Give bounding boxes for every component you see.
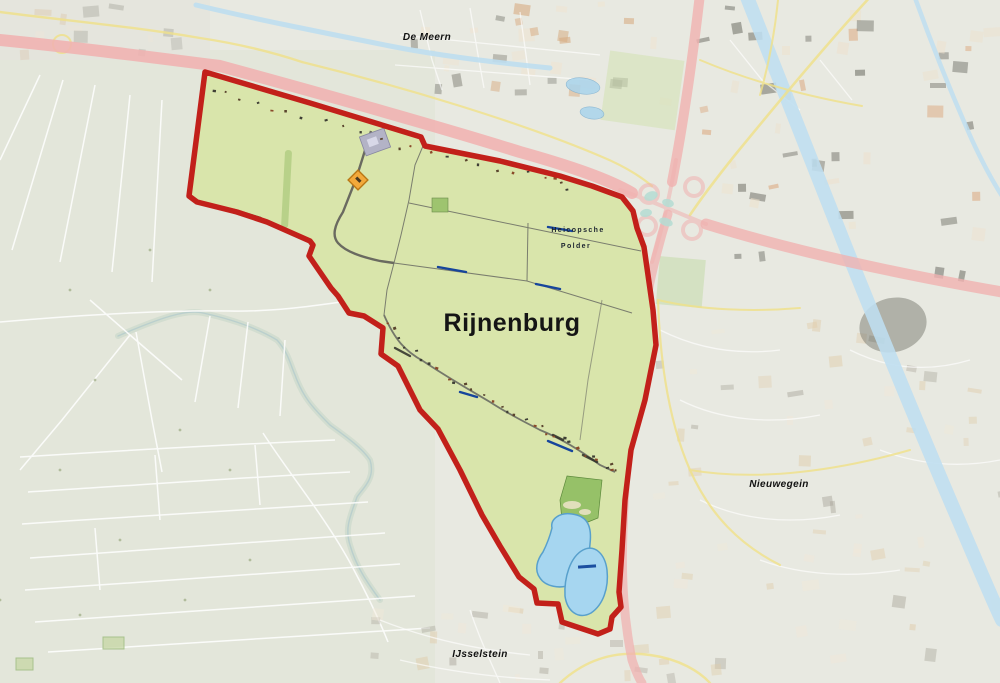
house-mark <box>452 382 455 385</box>
building-block <box>554 648 564 661</box>
house-mark <box>492 400 495 403</box>
building-block <box>969 30 983 43</box>
building-block <box>983 27 1000 37</box>
building-block <box>731 22 743 35</box>
building-block <box>855 514 862 519</box>
house-mark <box>359 131 361 133</box>
field-green-patch <box>432 198 448 212</box>
map-graphic <box>103 637 124 649</box>
building-block <box>857 20 874 31</box>
label-heicopsche-line2: Polder <box>561 243 591 250</box>
building-block <box>721 385 734 391</box>
label-heicopsche-line1: Heicopsche <box>551 227 604 234</box>
building-block <box>905 567 920 572</box>
building-block <box>370 652 378 659</box>
map-graphic <box>94 379 97 382</box>
building-block <box>610 640 623 647</box>
house-mark <box>595 458 598 461</box>
map-graphic <box>59 469 62 472</box>
building-block <box>824 400 833 410</box>
building-block <box>927 105 943 117</box>
label-nieuwegein: Nieuwegein <box>749 479 809 490</box>
map-graphic <box>69 289 72 292</box>
house-mark <box>512 414 515 417</box>
house-mark <box>563 437 566 440</box>
building-block <box>758 376 772 389</box>
building-block <box>923 371 937 382</box>
house-mark <box>614 469 616 471</box>
building-block <box>539 667 548 674</box>
building-block <box>511 50 525 61</box>
building-block <box>766 583 774 590</box>
building-block <box>522 624 531 634</box>
map-graphic <box>16 658 33 670</box>
house-mark <box>284 110 287 113</box>
building-block <box>782 46 790 55</box>
building-block <box>972 192 980 201</box>
house-mark <box>446 156 449 158</box>
map-graphic <box>229 469 232 472</box>
label-ijsselstein: IJsselstein <box>452 649 508 660</box>
house-mark <box>270 110 273 112</box>
building-block <box>624 670 630 681</box>
building-block <box>702 129 711 135</box>
building-block <box>963 438 968 446</box>
building-block <box>849 222 856 229</box>
building-block <box>515 89 527 95</box>
building-block <box>530 27 539 36</box>
building-block <box>556 6 568 13</box>
house-mark <box>213 90 217 93</box>
building-block <box>34 9 51 16</box>
building-block <box>969 417 977 424</box>
building-block <box>849 29 858 41</box>
building-block <box>441 613 453 619</box>
map-graphic <box>184 599 187 602</box>
house-mark <box>477 163 479 166</box>
house-mark <box>428 362 431 365</box>
building-block <box>681 573 693 580</box>
building-block <box>372 608 385 621</box>
building-block <box>711 664 722 676</box>
map-graphic <box>209 289 212 292</box>
topographic-map: De Meern Heicopsche Polder Rijnenburg Ni… <box>0 0 1000 683</box>
label-rijnenburg: Rijnenburg <box>444 309 581 337</box>
building-block <box>909 624 916 631</box>
building-block <box>831 152 839 161</box>
house-mark <box>420 359 423 362</box>
building-block <box>924 648 937 662</box>
building-block <box>919 381 925 390</box>
building-block <box>673 579 688 589</box>
house-mark <box>545 433 547 435</box>
house-mark <box>533 425 536 427</box>
building-block <box>787 416 793 425</box>
building-block <box>930 83 946 88</box>
building-block <box>650 37 657 49</box>
building-block <box>952 61 968 73</box>
house-mark <box>592 455 595 457</box>
building-block <box>799 455 811 466</box>
building-block <box>690 369 697 374</box>
building-block <box>148 35 154 42</box>
building-block <box>171 37 183 50</box>
building-block <box>812 319 821 332</box>
building-block <box>624 18 634 24</box>
building-block <box>83 5 100 17</box>
map-graphic <box>600 50 684 130</box>
house-mark <box>506 411 508 414</box>
building-block <box>971 227 985 241</box>
house-mark <box>541 425 543 427</box>
building-block <box>721 183 733 194</box>
building-block <box>734 254 741 259</box>
building-block <box>863 152 870 164</box>
building-block <box>795 625 808 638</box>
building-block <box>668 481 678 486</box>
building-block <box>805 36 811 42</box>
building-block <box>855 70 865 76</box>
building-block <box>490 81 500 92</box>
building-block <box>691 425 698 430</box>
building-block <box>822 496 833 507</box>
house-mark <box>448 379 451 381</box>
building-block <box>738 184 746 192</box>
label-de-meern: De Meern <box>403 32 451 43</box>
building-block <box>892 595 907 609</box>
building-block <box>837 42 850 56</box>
building-block <box>20 50 30 61</box>
building-block <box>802 579 820 591</box>
map-graphic <box>149 249 152 252</box>
building-block <box>884 386 894 396</box>
building-block <box>513 3 530 16</box>
map-graphic <box>119 539 122 542</box>
building-block <box>829 355 843 367</box>
map-graphic <box>79 614 82 617</box>
map-viewport: De Meern Heicopsche Polder Rijnenburg Ni… <box>0 0 1000 683</box>
building-block <box>944 424 954 434</box>
map-graphic <box>179 429 182 432</box>
building-block <box>557 30 569 42</box>
map-graphic <box>579 509 591 515</box>
map-graphic <box>563 501 581 509</box>
building-block <box>74 31 88 43</box>
building-block <box>565 637 580 645</box>
building-block <box>538 651 543 659</box>
building-block <box>854 549 861 553</box>
house-mark <box>545 177 547 179</box>
building-block <box>656 606 671 619</box>
building-block <box>548 78 557 84</box>
building-block <box>965 46 971 51</box>
building-block <box>839 619 857 631</box>
house-mark <box>398 148 400 151</box>
building-block <box>749 198 760 209</box>
building-block <box>758 251 765 262</box>
building-block <box>598 2 605 7</box>
map-graphic <box>249 559 252 562</box>
building-block <box>458 623 467 634</box>
